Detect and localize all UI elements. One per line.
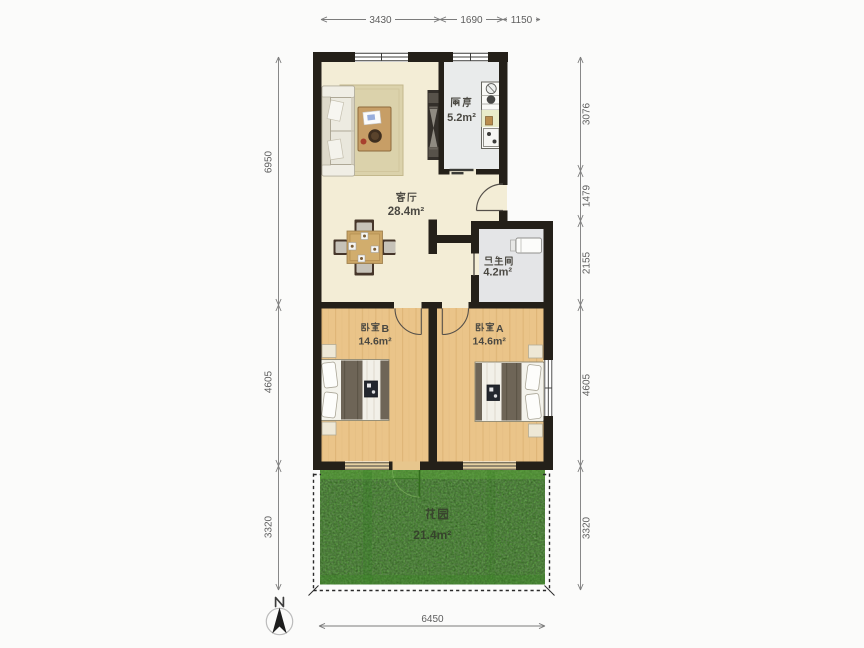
svg-text:14.6m²: 14.6m² — [358, 336, 392, 348]
svg-text:1479: 1479 — [582, 184, 593, 207]
svg-text:6950: 6950 — [264, 150, 275, 173]
svg-text:14.6m²: 14.6m² — [473, 336, 507, 348]
svg-text:A: A — [496, 323, 504, 335]
svg-text:4.2m²: 4.2m² — [483, 267, 512, 279]
svg-text:6450: 6450 — [421, 614, 444, 625]
svg-text:3320: 3320 — [582, 516, 593, 539]
svg-text:3430: 3430 — [369, 15, 392, 26]
svg-text:21.4m²: 21.4m² — [413, 528, 451, 542]
svg-text:5.2m²: 5.2m² — [447, 112, 476, 124]
svg-text:2155: 2155 — [582, 251, 593, 274]
svg-text:4605: 4605 — [264, 370, 275, 393]
svg-text:3076: 3076 — [582, 102, 593, 125]
svg-text:4605: 4605 — [582, 373, 593, 396]
svg-text:1150: 1150 — [511, 15, 533, 26]
svg-text:3320: 3320 — [264, 515, 275, 538]
svg-text:28.4m²: 28.4m² — [388, 206, 425, 218]
svg-text:B: B — [382, 323, 390, 335]
svg-text:1690: 1690 — [460, 15, 483, 26]
